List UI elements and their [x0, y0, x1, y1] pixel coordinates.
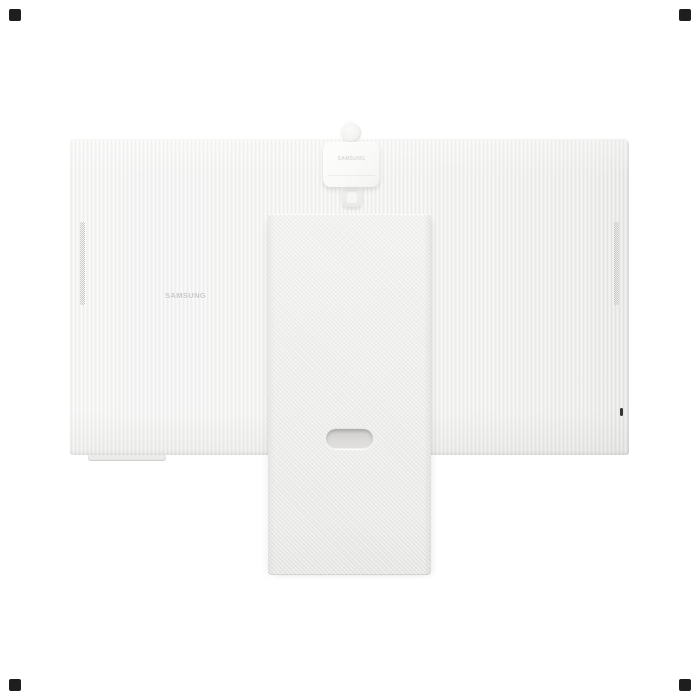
webcam-module[interactable]: SAMSUNG [323, 142, 380, 187]
product-photo-canvas: SAMSUNG SAMSUNG [0, 0, 700, 700]
corner-mark-bottom-left [9, 679, 21, 691]
speaker-grille-right [614, 222, 619, 305]
corner-mark-bottom-right [679, 679, 691, 691]
monitor-stand-column [268, 214, 431, 575]
webcam-clip-slot [346, 190, 358, 203]
corner-mark-top-right [679, 9, 691, 21]
corner-mark-top-left [9, 9, 21, 21]
webcam-lens-pod [341, 123, 361, 142]
samsung-logo: SAMSUNG [165, 291, 206, 300]
power-button[interactable] [620, 408, 623, 416]
webcam-seam-line [328, 175, 375, 176]
cable-management-hole [326, 429, 373, 449]
webcam-samsung-logo: SAMSUNG [323, 156, 380, 162]
speaker-grille-left [80, 222, 85, 305]
webcam-mount-clip[interactable] [342, 186, 362, 207]
panel-bottom-lip [88, 455, 166, 461]
